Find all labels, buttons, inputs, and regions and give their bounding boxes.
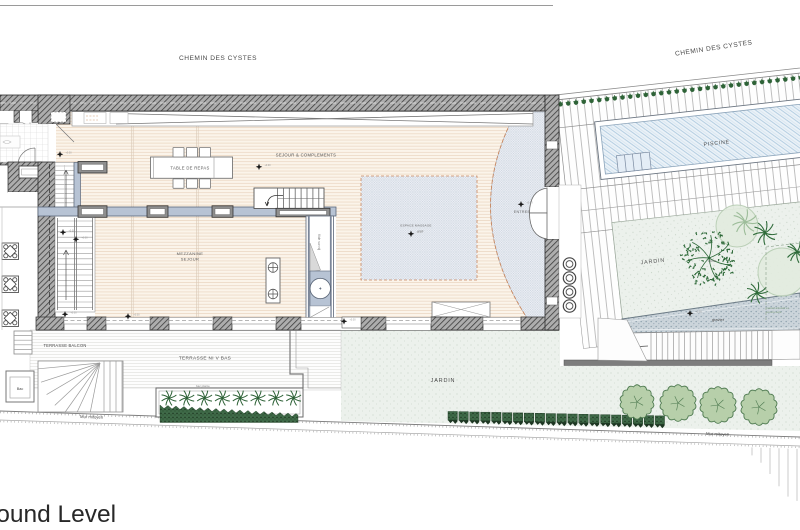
svg-text:olivier: olivier [708,259,717,263]
svg-text:+0.00: +0.00 [696,311,703,314]
svg-text:MEZZANINE: MEZZANINE [177,251,204,256]
svg-text:Bac: Bac [17,387,24,391]
svg-text:Mur mitoyen: Mur mitoyen [706,431,730,437]
svg-text:CHEMIN DES CYSTES: CHEMIN DES CYSTES [179,55,257,62]
svg-text:ENTREE: ENTREE [514,210,531,214]
svg-text:+0.00: +0.00 [82,237,89,240]
svg-text:TABLE DE REPAS: TABLE DE REPAS [170,166,209,171]
svg-text:+0.00: +0.00 [417,231,424,234]
svg-text:TERRASSE BALCON: TERRASSE BALCON [43,343,86,348]
svg-text:ESPACE MASSAGE: ESPACE MASSAGE [400,224,431,228]
svg-text:bac plante: bac plante [196,384,210,388]
svg-text:JARDIN: JARDIN [431,378,456,384]
svg-text:Vide sur rdj: Vide sur rdj [317,234,321,250]
svg-text:+0.00: +0.00 [69,230,76,233]
svg-text:Mur mitoyen: Mur mitoyen [80,414,104,420]
svg-text:gravier: gravier [712,317,725,322]
svg-text:+0.00: +0.00 [66,152,73,155]
svg-text:+0.00: +0.00 [527,202,534,205]
svg-text:+0.00: +0.00 [134,314,141,317]
svg-text:+0.00: +0.00 [71,312,78,315]
svg-text:TERRASSE NI V BAS: TERRASSE NI V BAS [179,356,231,361]
svg-text:couvre-sols: couvre-sols [766,310,782,314]
svg-text:Ground Level: Ground Level [0,501,116,528]
svg-text:+0.00: +0.00 [265,164,272,167]
svg-text:SEJOUR & COMPLEMENTS: SEJOUR & COMPLEMENTS [276,153,336,158]
svg-text:+0.00: +0.00 [350,319,357,322]
svg-text:SEJOUR: SEJOUR [181,257,200,262]
